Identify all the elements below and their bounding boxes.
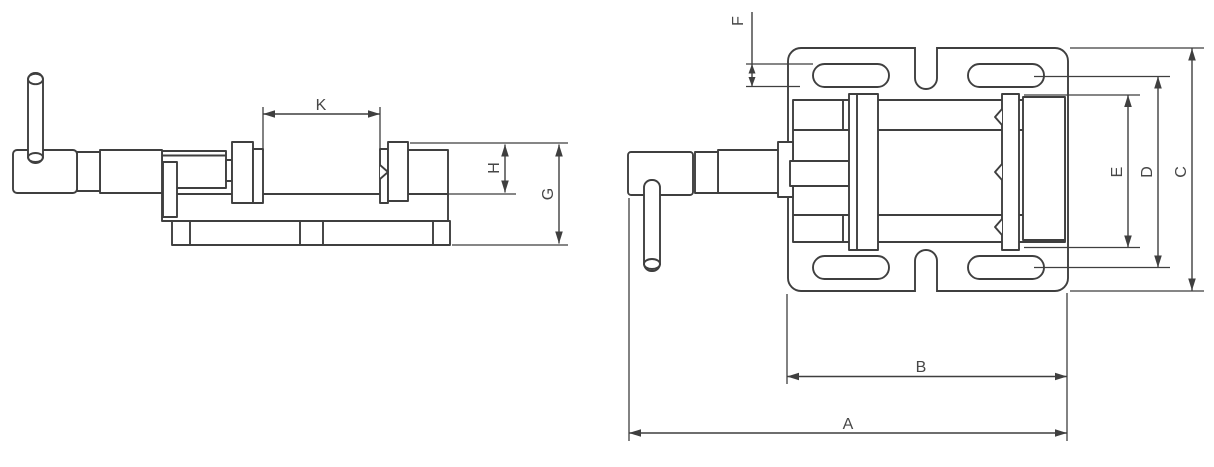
dim-G-arrow-up [555,145,563,157]
screw-section [100,150,162,193]
dim-H-arrow-up [501,145,509,157]
dim-F-label: F [730,16,747,26]
screw-section-top [718,150,780,193]
dim-E-label: E [1109,167,1126,178]
slot-top-left [813,64,889,87]
screw-collar [77,152,100,191]
dim-E-arrow-down [1124,236,1132,248]
dim-B-label: B [916,359,927,376]
top-view: F E D C [628,12,1204,441]
fixed-jaw-block [388,142,408,201]
vise-drawing-svg: K H G [0,0,1214,467]
dim-H-arrow-down [501,181,509,193]
front-bracket [163,162,177,217]
technical-drawing: K H G [0,0,1214,467]
fixed-jaw-top [1002,94,1019,250]
notch-bottom-center [915,250,937,292]
dim-A-arrow-right [1055,429,1067,437]
fixed-jaw-casting [408,150,448,195]
slot-bottom-left [813,256,889,279]
moving-jaw-insert [253,149,263,203]
handle-rod-top [644,180,660,271]
dim-K-arrow-right [368,110,380,118]
dim-C-arrow-down [1188,279,1196,291]
dim-D-arrow-up [1154,77,1162,89]
dim-A-arrow-left [629,429,641,437]
handle-hub [13,150,77,193]
side-view-vise-body [13,73,450,245]
base-flange [172,221,450,245]
dim-G-arrow-down [555,232,563,244]
dim-D-label: D [1139,166,1156,178]
dim-G-label: G [540,188,557,200]
rear-block [1023,97,1065,240]
dim-F-arrow-down [749,77,756,87]
dim-K-label: K [316,97,327,114]
dim-F-arrow-up [749,64,756,74]
dim-E-arrow-up [1124,95,1132,107]
moving-jaw-block [232,142,253,203]
moving-jaw-top [849,94,878,250]
dim-D-arrow-down [1154,256,1162,268]
handle-rod [28,73,43,163]
dim-B-arrow-right [1055,373,1067,381]
dim-B-arrow-left [787,373,799,381]
notch-top-center [915,47,937,89]
side-view: K H G [13,73,568,245]
dim-C-label: C [1173,166,1190,178]
screw-collar-top [695,152,718,193]
screw-shaft [790,161,849,186]
dim-A-label: A [843,416,854,433]
dim-H-label: H [486,162,503,174]
slot-bottom-right [968,256,1044,279]
dim-C-arrow-up [1188,49,1196,61]
slot-top-right [968,64,1044,87]
top-view-vise-body [628,47,1068,292]
dim-K-arrow-left [263,110,275,118]
